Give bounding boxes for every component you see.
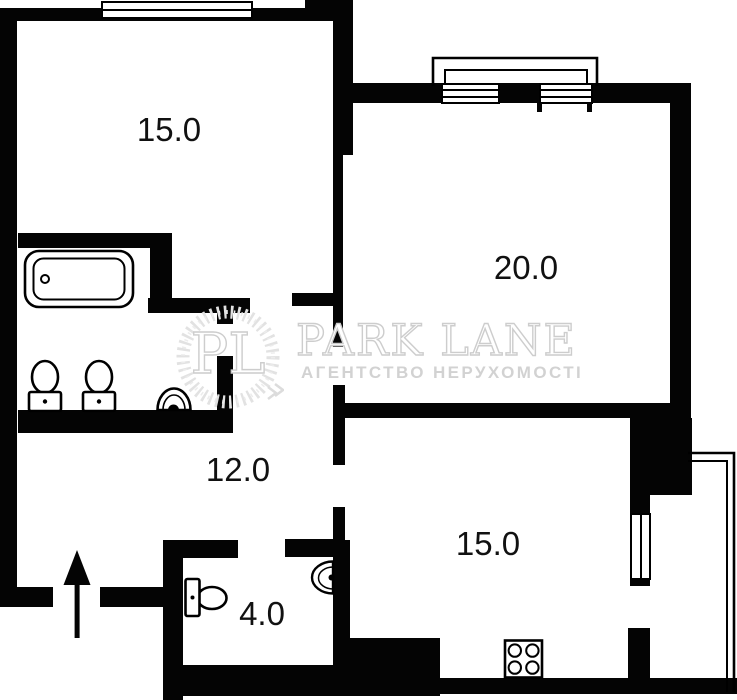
window-mullion — [442, 96, 499, 98]
wall-entrance-left-nub — [17, 587, 53, 607]
balcony-outline — [433, 58, 597, 86]
wall-bottom-block — [337, 638, 440, 696]
floorplan: 15.0 20.0 12.0 15.0 4.0 PL PARK LANE АГЕ… — [0, 0, 737, 700]
wall-room20-right — [670, 103, 691, 420]
wall-wc-top-right — [285, 539, 333, 557]
window-balcony-left — [441, 83, 500, 104]
room-label-wc: 4.0 — [239, 595, 285, 633]
sink-icon — [312, 562, 335, 594]
sink-icon — [158, 389, 191, 411]
wall-room20-top — [353, 83, 691, 103]
stove-icon — [505, 641, 542, 678]
wall-divider-upper-thick — [333, 8, 353, 155]
wall-exterior-left — [0, 8, 17, 607]
room-label-kitchen: 15.0 — [456, 525, 520, 563]
wall-bath-jog — [150, 233, 172, 302]
room-label-top-right: 20.0 — [494, 249, 558, 287]
watermark-subtitle: АГЕНТСТВО НЕРУХОМОСТІ — [301, 363, 583, 383]
wall-bath-right-lower — [217, 356, 233, 410]
window-mullion — [540, 96, 592, 98]
wall-bath-right-upper — [217, 308, 233, 324]
wall-kitchen-east-lower — [628, 628, 650, 680]
wall-divider-mid — [333, 155, 343, 347]
toilet-icon — [186, 579, 227, 616]
window-mullion — [540, 89, 592, 91]
wall-room20-bottom — [342, 403, 670, 418]
wall-bottom-under-wc — [163, 665, 350, 696]
wall-bath-bottom — [18, 410, 233, 433]
wall-hall-divider-upper — [333, 385, 345, 465]
window-balcony-right — [539, 83, 593, 104]
room-label-top-left: 15.0 — [137, 111, 201, 149]
toilet-icon — [29, 361, 61, 411]
window-mullion — [640, 514, 642, 579]
toilet-icon — [83, 361, 115, 411]
window-top-left — [101, 1, 253, 19]
door-jamb-tick — [587, 103, 592, 112]
window-mullion — [442, 89, 499, 91]
window-kitchen — [630, 513, 651, 580]
entrance-arrow-icon — [64, 550, 91, 638]
wall-room15-bottom-stub — [292, 293, 333, 306]
wall-bath-top — [18, 233, 152, 248]
wall-kitchen-east-upper — [630, 495, 650, 514]
wall-wc-top-left — [163, 540, 238, 558]
bathtub-icon — [25, 251, 133, 307]
wall-entrance-right — [100, 587, 163, 607]
wall-balcony-block — [630, 418, 692, 495]
window-mullion — [102, 9, 252, 11]
room-label-hallway: 12.0 — [206, 451, 270, 489]
balcony-outline — [688, 453, 734, 692]
wall-bottom-kitchen — [440, 678, 737, 694]
door-jamb-tick — [537, 103, 542, 112]
